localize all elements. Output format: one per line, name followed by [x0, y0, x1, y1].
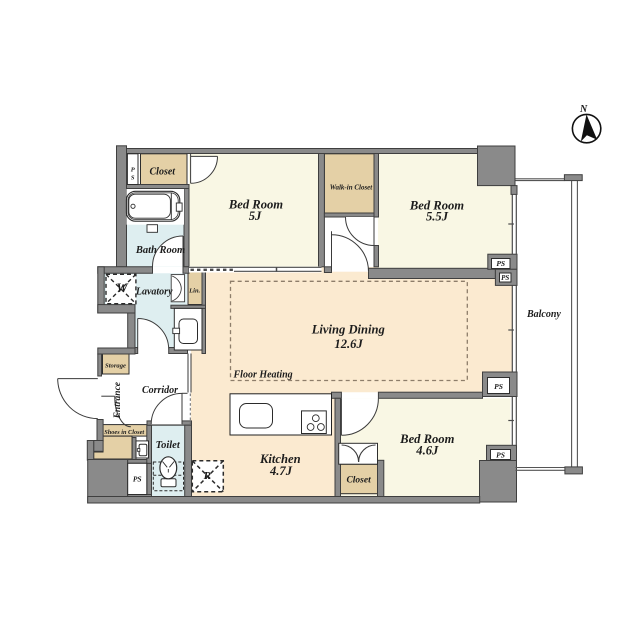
svg-text:Walk-in Closet: Walk-in Closet: [330, 183, 374, 191]
svg-text:PS: PS: [496, 259, 505, 268]
svg-text:5.5J: 5.5J: [426, 210, 449, 224]
svg-text:Shoes in Closet: Shoes in Closet: [104, 429, 144, 436]
svg-text:4.6J: 4.6J: [415, 444, 439, 458]
svg-text:N: N: [579, 104, 588, 115]
svg-text:Storage: Storage: [105, 363, 126, 370]
svg-text:S: S: [131, 175, 135, 182]
svg-text:Lin.: Lin.: [188, 288, 200, 295]
svg-text:Toilet: Toilet: [156, 440, 181, 451]
svg-text:Balcony: Balcony: [526, 309, 561, 320]
svg-text:PS: PS: [133, 474, 142, 483]
svg-text:Lavatory: Lavatory: [135, 287, 173, 298]
svg-text:Floor Heating: Floor Heating: [233, 370, 293, 381]
svg-text:12.6J: 12.6J: [334, 337, 363, 351]
svg-text:PS: PS: [501, 274, 509, 282]
svg-text:PS: PS: [496, 450, 505, 459]
svg-text:Entrance: Entrance: [113, 381, 123, 419]
svg-text:Bath Room: Bath Room: [135, 245, 185, 256]
svg-text:R: R: [203, 470, 211, 482]
svg-text:5J: 5J: [249, 209, 262, 223]
svg-text:Closet: Closet: [150, 166, 177, 177]
svg-text:Closet: Closet: [346, 476, 371, 486]
svg-text:W: W: [116, 281, 128, 295]
svg-text:Corridor: Corridor: [142, 385, 178, 396]
svg-text:Living Dining: Living Dining: [311, 323, 385, 337]
svg-text:PS: PS: [494, 382, 503, 391]
svg-text:4.7J: 4.7J: [269, 464, 293, 478]
